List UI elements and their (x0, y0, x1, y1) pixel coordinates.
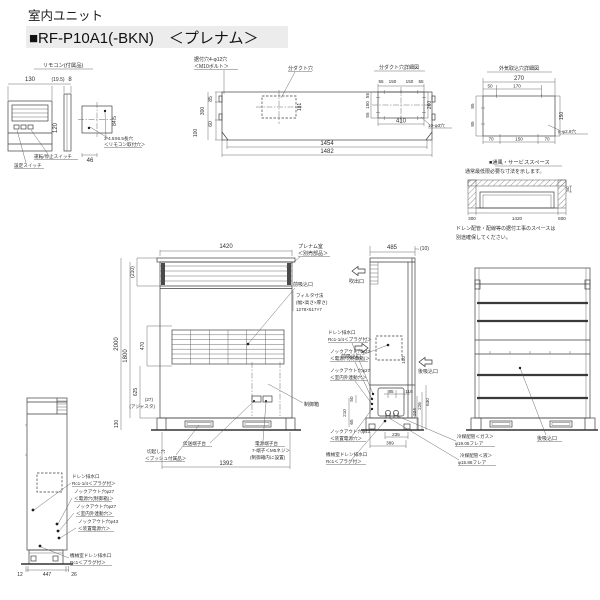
dim-front-470: 470 (140, 342, 146, 351)
model-number: ■RF-P10A1(-BKN) ＜プレナム＞ (29, 30, 258, 47)
control-box-label: 制御箱 (304, 401, 319, 408)
left-side-view-drawing: 12 447 26 ドレン排水口 Rc1-1/4＜プラグ付＞ ノックアウト穴φ2… (17, 398, 118, 578)
lside-ko27a-label: ノックアウト穴φ27 (74, 488, 115, 495)
remote-title: リモコン(付属品) (43, 61, 84, 69)
dim-duct-260: 260 (427, 101, 433, 110)
lside-control-box (37, 473, 62, 492)
dim-side-50: 50 (349, 396, 354, 402)
dim-front-1420: 1420 (219, 244, 233, 250)
dim-intake-b150: 150 (515, 137, 523, 142)
dim-duct-l2: 150 (365, 101, 370, 109)
dim-intake-270: 270 (514, 76, 525, 82)
dim-intake-150r: 150 (559, 112, 565, 121)
dim-remote-w: 130 (25, 77, 36, 83)
dim-top-100: 100 (193, 129, 199, 138)
plenum-label: プレナム室 (298, 243, 323, 250)
front-base (157, 418, 295, 430)
branch-duct-label: 分ダクト穴 (288, 65, 313, 72)
dim-service-1420: 1420 (512, 216, 523, 221)
lside-ko27a-label2: ＜電源穴(制御箱)＞ (74, 495, 114, 502)
duct-hole-detail: 分ダクト穴詳細図 55 150 150 55 55 150 55 260 410… (365, 64, 452, 129)
sheet-title: 室内ユニット (28, 8, 103, 23)
dim-duct-t3: 150 (406, 79, 414, 84)
dim-front-1392: 1392 (219, 461, 233, 467)
dim-duct-410: 410 (396, 119, 407, 125)
cutout-label: 切起し穴 (147, 448, 166, 455)
mount-hole-label: 据付穴4-φ12穴 (194, 56, 227, 63)
dim-service-50: 50 (565, 186, 570, 192)
lside-body (27, 398, 67, 550)
dim-side-226: 226 (417, 402, 422, 410)
remote-front (8, 101, 52, 151)
front-filter-grille (172, 330, 284, 364)
dim-duct-t4: 55 (418, 79, 424, 84)
dim-intake-50: 50 (487, 84, 493, 89)
lside-ko43-label: ノックアウト穴φ43 (78, 518, 119, 525)
ko27a-label2: ＜電源穴(制御箱)＞ (330, 355, 370, 362)
dim-duct-t2: 150 (389, 79, 397, 84)
service-note1: ドレン配管・配線等の据付工事のスペースは (456, 225, 555, 232)
plenum-end-right (287, 263, 291, 285)
dim-lside-447: 447 (43, 572, 52, 578)
dim-front-2000: 2000 (114, 337, 120, 351)
dim-front-adj: (27) (145, 397, 154, 402)
drain-label2: Rc1-1/4＜プラグ付＞ (328, 336, 372, 343)
lside-drain-label: ドレン排水口 (72, 473, 100, 480)
dim-top-181: 181 (297, 103, 303, 112)
ko27a-label: ノックアウト穴φ27 (330, 348, 371, 355)
dim-side-389: 389 (386, 441, 394, 446)
refrigerant-liquid-label2: φ15.88フレア (458, 460, 487, 466)
dim-front-adj2: (アジャスタ) (129, 403, 155, 410)
rear-base (471, 418, 595, 430)
rear-inlet-arrow-icon (419, 358, 432, 367)
refrigerant-gas-label2: φ19.05フレア (455, 441, 484, 447)
dim-duct-t1: 55 (378, 79, 384, 84)
power-terminal-label2: 7-端子＜M5ネジ＞ (252, 447, 290, 454)
lside-mech-drain-label: 機械室ドレン排水口 (70, 552, 112, 559)
dim-side-210: 210 (342, 409, 347, 417)
remote-runstop-label: 運転/停止スイッチ (34, 153, 72, 160)
dim-intake-b70a: 70 (488, 137, 494, 142)
intake-hole-detail: 外気取込穴詳細図 270 50 170 85 85 150 70 150 70 … (470, 65, 588, 144)
service-wall-top (468, 180, 566, 186)
rear-view-drawing: 後吸込口 (466, 268, 598, 442)
cutout-label2: ＜ブッシュ付属品＞ (145, 455, 187, 462)
side-view-drawing: 485 (10) 吹出口 前吸込口 後吸込口 100 85 116 630 22… (326, 245, 496, 466)
service-unit-box (480, 192, 554, 208)
mount-hole-label2: ＜M10ボルト＞ (194, 63, 229, 70)
dim-duct-l3: 55 (365, 112, 370, 118)
dim-side-235: 235 (392, 432, 400, 437)
dim-side-10: (10) (420, 246, 429, 252)
ko27b-label: ノックアウト穴φ27 (330, 367, 371, 374)
dim-side-100: 100 (401, 356, 406, 364)
lside-ko27b-label2: ＜室内外連動穴＞ (76, 510, 113, 517)
filter-size-label3: 1278×517×7 (296, 307, 322, 312)
service-sub: 通常最低限必要な寸法を示します。 (465, 168, 545, 175)
lside-drain-label2: Rc1-1/4＜プラグ付＞ (72, 480, 116, 487)
dim-top-1482: 1482 (320, 149, 334, 155)
dim-front-210: (210) (130, 266, 136, 278)
dim-remote-w2: 46 (87, 158, 94, 164)
dim-duct-l1: 55 (365, 93, 370, 99)
dim-side-116: 116 (405, 389, 413, 394)
service-wall-right (558, 180, 566, 208)
dim-intake-b70b: 70 (544, 137, 550, 142)
power-terminal-label: 電源端子台 (255, 440, 278, 447)
mech-drain-label2: Rc1＜プラグ付＞ (326, 458, 362, 465)
service-note2: 別途確保してください。 (456, 234, 511, 241)
dim-service-600: 600 (558, 216, 566, 221)
service-wall-left (468, 180, 476, 208)
lside-mech-drain-label2: Rc1＜プラグ付＞ (70, 559, 106, 566)
side-rear-inlet-label: 後吸込口 (418, 368, 438, 375)
dim-side-485: 485 (387, 245, 398, 251)
service-space-note: ■通風・サービススペース 通常最低限必要な寸法を示します。 50 300 142… (456, 158, 572, 241)
dim-top-300: 300 (200, 107, 206, 116)
lside-ko27b-label: ノックアウト穴φ27 (76, 503, 117, 510)
plenum-end-left (161, 263, 165, 285)
filter-size-label2: (幅×高さ×厚さ) (296, 299, 328, 306)
ko27b-label2: ＜室内外連動穴＞ (330, 374, 367, 381)
dim-lside-26: 26 (71, 572, 77, 578)
ko43-label2: ＜装置電源穴＞ (330, 435, 363, 442)
filter-size-label1: フィルタ寸法 (296, 292, 324, 299)
mech-drain-label: 機械室ドレン排水口 (326, 451, 368, 458)
dim-top-60: 60 (208, 121, 214, 127)
dim-intake-l85a: 85 (470, 103, 475, 109)
dim-intake-170: 170 (513, 84, 521, 89)
front-inlet-label: 前吸込口 (293, 281, 313, 288)
rear-inlet-label: 後吸込口 (537, 435, 557, 442)
drain-label: ドレン排水口 (328, 329, 356, 336)
remote-setting-label: 設定スイッチ (14, 162, 42, 169)
technical-drawing: 室内ユニット ■RF-P10A1(-BKN) ＜プレナム＞ リモコン(付属品) … (0, 0, 600, 600)
intake-detail-rect (483, 96, 555, 136)
dim-side-65: 65 (349, 419, 354, 425)
remote-drawing: リモコン(付属品) 130 (19.5) 8 120 84.5 46 3-4.5… (8, 61, 146, 169)
dim-front-130: 130 (114, 420, 120, 429)
plenum-label2: ＜別売部品＞ (298, 250, 328, 257)
dim-remote-h2: 84.5 (112, 116, 118, 126)
duct-detail-title: 分ダクト穴詳細図 (379, 64, 419, 71)
remote-hole-label2: ＜リモコン取付穴＞ (104, 141, 146, 148)
remote-hole-label: 3-4.5X6.5長穴 (104, 135, 134, 142)
dim-intake-l85b: 85 (470, 121, 475, 127)
outlet-arrow-icon (352, 267, 365, 276)
dim-remote-t: 8 (68, 77, 72, 83)
dim-remote-gap: (19.5) (51, 77, 64, 83)
dim-top-85: 85 (208, 96, 214, 102)
refrigerant-gas-label: 冷媒配管＜ガス＞ (457, 433, 494, 440)
dim-lside-12: 12 (17, 572, 23, 578)
dim-service-300: 300 (468, 216, 476, 221)
remote-side (64, 94, 71, 151)
front-top-plate (157, 258, 295, 262)
dim-side-85: 85 (388, 389, 394, 394)
front-body (160, 262, 292, 418)
drawing-sheet: 室内ユニット ■RF-P10A1(-BKN) ＜プレナム＞ リモコン(付属品) … (0, 0, 600, 600)
dim-front-625: 625 (133, 388, 139, 397)
ko43-label: ノックアウト穴φ43 (330, 428, 371, 435)
lside-ko43-label2: ＜装置電源穴＞ (78, 525, 111, 532)
outlet-label: 吹出口 (349, 278, 364, 285)
dim-side-630: 630 (425, 398, 430, 406)
service-title: ■通風・サービススペース (489, 158, 550, 166)
title-block: 室内ユニット ■RF-P10A1(-BKN) ＜プレナム＞ (26, 8, 288, 48)
top-view-body (222, 92, 432, 140)
front-view-drawing: 1420 (210) 2000 1800 470 625 (27) (アジャスタ… (114, 243, 330, 469)
refrigerant-liquid-label: 冷媒配管＜液＞ (460, 452, 493, 459)
dim-front-1800: 1800 (123, 349, 129, 363)
power-terminal-label3: (制御箱内に設置) (250, 454, 286, 461)
intake-detail-title: 外気取込穴詳細図 (499, 65, 539, 72)
rear-body (475, 268, 590, 418)
dim-remote-h: 120 (53, 122, 59, 133)
dim-top-1454: 1454 (320, 141, 334, 147)
